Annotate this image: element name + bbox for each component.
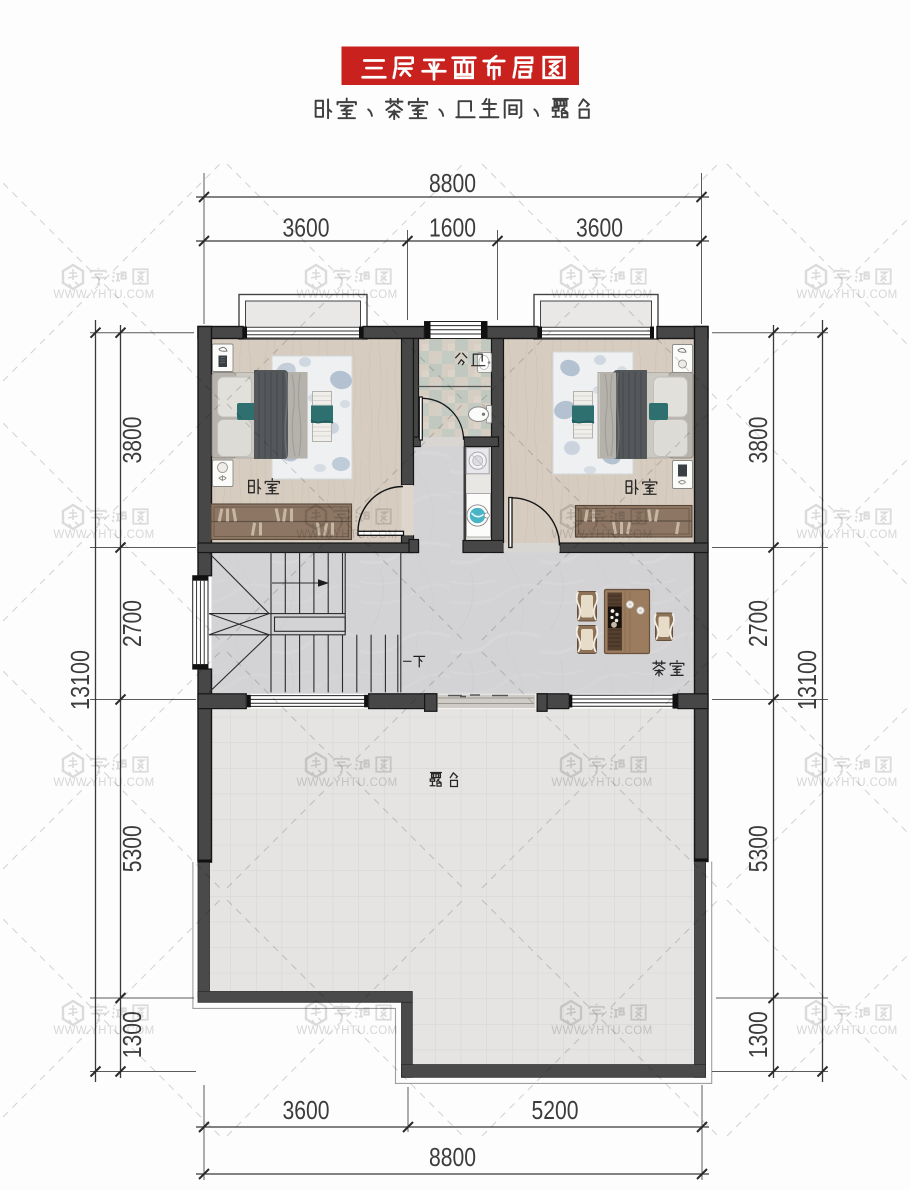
- svg-text:5300: 5300: [117, 825, 147, 872]
- svg-text:2700: 2700: [743, 600, 773, 647]
- svg-text:8800: 8800: [429, 1142, 476, 1172]
- svg-text:3600: 3600: [283, 213, 330, 243]
- svg-text:3800: 3800: [117, 417, 147, 464]
- svg-text:8800: 8800: [429, 168, 476, 198]
- svg-text:5300: 5300: [743, 825, 773, 872]
- svg-text:5200: 5200: [532, 1095, 579, 1125]
- svg-text:3600: 3600: [576, 213, 623, 243]
- svg-text:2700: 2700: [117, 600, 147, 647]
- svg-text:1300: 1300: [743, 1011, 773, 1058]
- svg-text:13100: 13100: [65, 650, 95, 710]
- svg-text:3800: 3800: [743, 417, 773, 464]
- svg-text:3600: 3600: [283, 1095, 330, 1125]
- svg-text:13100: 13100: [792, 650, 822, 710]
- svg-text:1600: 1600: [429, 213, 476, 243]
